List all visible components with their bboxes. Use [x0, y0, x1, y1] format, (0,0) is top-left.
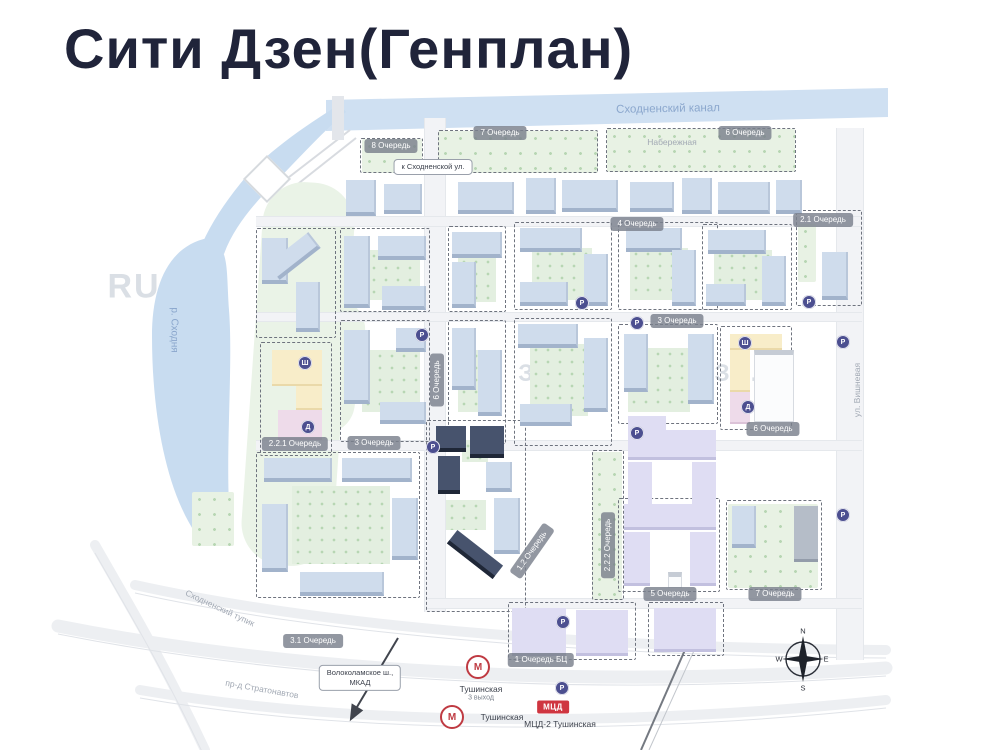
building — [296, 386, 322, 410]
building — [762, 256, 786, 306]
phase-badge: 2.1 Очередь — [793, 213, 853, 227]
compass-letter: S — [800, 684, 805, 693]
court — [292, 486, 390, 564]
parking-icon: P — [555, 681, 569, 695]
building — [668, 572, 682, 588]
building — [458, 182, 514, 214]
building — [296, 282, 320, 332]
street-naberezhnaya: Набережная — [647, 137, 696, 147]
mcd-line-badge: МЦД — [537, 701, 569, 714]
sign-to-skhodnenskaya: к Сходненской ул. — [394, 159, 473, 175]
compass-letter: N — [800, 627, 805, 636]
building — [378, 236, 426, 260]
building — [822, 252, 848, 300]
parking-icon: P — [836, 508, 850, 522]
compass-letter: E — [823, 655, 828, 664]
phase-badge: 7 Очередь — [473, 126, 526, 140]
genplan-map: 8 Очередь7 Очередь6 Очередь4 Очередь2.1 … — [0, 0, 1000, 750]
building — [690, 532, 716, 586]
building — [718, 182, 770, 214]
building — [626, 228, 682, 252]
building — [512, 608, 566, 656]
building — [706, 284, 746, 306]
building — [794, 506, 818, 562]
kindergarten-icon: Д — [741, 400, 755, 414]
parking-icon: P — [575, 296, 589, 310]
phase-badge: 2.2.2 Очередь — [601, 512, 615, 578]
phase-badge: 1 Очередь БЦ — [508, 653, 574, 667]
parking-icon: P — [836, 335, 850, 349]
phase-badge: 8 Очередь — [364, 139, 417, 153]
building — [470, 426, 504, 458]
building — [624, 334, 648, 392]
building — [562, 180, 618, 212]
building — [344, 330, 370, 404]
compass-letter: W — [775, 655, 782, 664]
phase-badge: 5 Очередь — [643, 587, 696, 601]
building — [576, 610, 628, 656]
mcd-station-label: МЦД-2 Тушинская — [524, 719, 596, 729]
sign-volokolamskoe-mkad: Волоколамское ш.,МКАД — [319, 665, 401, 691]
school-icon: Ш — [738, 336, 752, 350]
parking-icon: P — [415, 328, 429, 342]
metro-icon: М — [466, 655, 490, 679]
building — [392, 498, 418, 560]
building — [384, 184, 422, 214]
metro-station-label: Тушинская — [481, 712, 524, 722]
phase-badge: 4 Очередь — [610, 217, 663, 231]
page-title: Сити Дзен(Генплан) — [64, 16, 633, 81]
parking-icon: P — [630, 316, 644, 330]
gray-soft — [332, 96, 344, 140]
park — [192, 492, 234, 546]
phase-badge: 3 Очередь — [650, 314, 703, 328]
building — [264, 458, 332, 482]
building — [624, 504, 716, 530]
building — [654, 608, 716, 652]
building — [624, 532, 650, 586]
building — [346, 180, 376, 216]
parking-icon: P — [426, 440, 440, 454]
building — [300, 572, 384, 596]
phase-badge: 3.1 Очередь — [283, 634, 343, 648]
building — [478, 350, 502, 416]
parking-icon: P — [556, 615, 570, 629]
building — [708, 230, 766, 254]
metro-exit-label: 3 выход — [468, 695, 494, 702]
building — [754, 350, 794, 422]
building — [494, 498, 520, 554]
building — [730, 350, 750, 392]
phase-badge: 7 Очередь — [748, 587, 801, 601]
court — [446, 500, 486, 530]
building — [278, 410, 322, 440]
building — [344, 236, 370, 308]
building — [520, 404, 572, 426]
building — [776, 180, 802, 214]
building — [438, 456, 460, 494]
building — [688, 334, 714, 404]
building — [518, 324, 578, 348]
phase-badge: 6 Очередь — [718, 126, 771, 140]
building — [682, 178, 712, 214]
phase-badge: 6 Очередь — [430, 353, 444, 406]
building — [382, 286, 426, 310]
phase-badge: 6 Очередь — [746, 422, 799, 436]
building — [342, 458, 412, 482]
building — [526, 178, 556, 214]
kindergarten-icon: Д — [301, 420, 315, 434]
building — [272, 350, 322, 386]
parking-icon: P — [630, 426, 644, 440]
building — [380, 402, 426, 424]
building — [262, 504, 288, 572]
building — [436, 426, 466, 452]
phase-badge: 2.2.1 Очередь — [262, 437, 328, 451]
building — [732, 506, 756, 548]
building — [630, 182, 674, 212]
canal-label: Сходненский канал — [616, 102, 720, 116]
street-vishnevaya: ул. Вишневая — [852, 363, 862, 417]
building — [452, 328, 476, 390]
building — [584, 338, 608, 412]
river-label: р. Сходня — [169, 307, 180, 352]
building — [486, 462, 512, 492]
page: { "title": "Сити Дзен(Генплан)", "map": … — [0, 0, 1000, 750]
building — [672, 250, 696, 306]
building — [452, 232, 502, 258]
metro-station-label: Тушинская — [460, 684, 503, 694]
building — [520, 228, 582, 252]
phase-badge: 3 Очередь — [347, 436, 400, 450]
building — [520, 282, 568, 306]
building — [452, 262, 476, 308]
watermark: RU — [107, 268, 160, 307]
canal-water — [326, 88, 888, 131]
metro-icon: М — [440, 705, 464, 729]
school-icon: Ш — [298, 356, 312, 370]
parking-icon: P — [802, 295, 816, 309]
